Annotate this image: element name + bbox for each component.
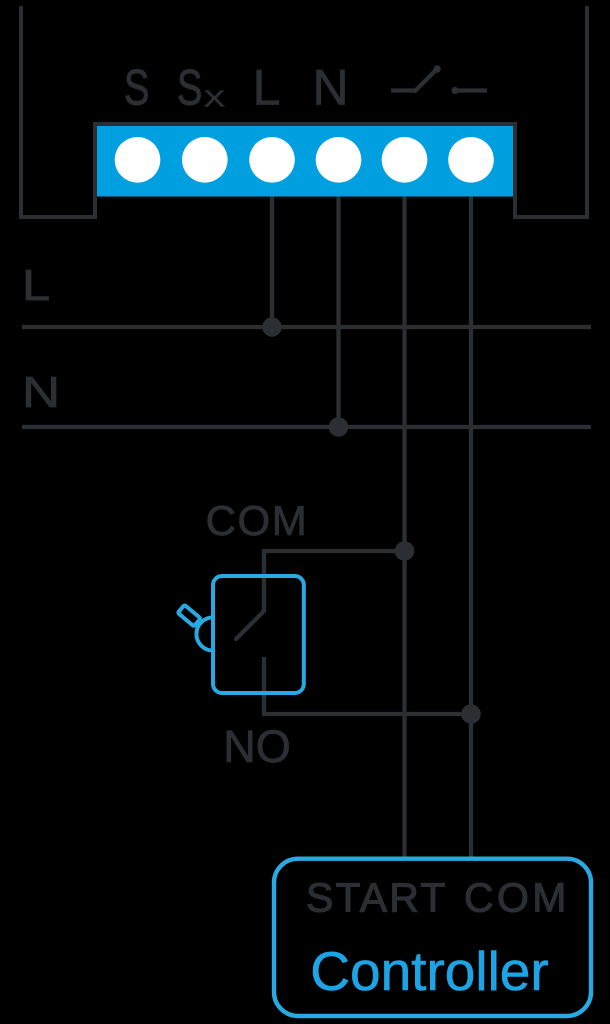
svg-text:N: N bbox=[312, 60, 348, 116]
svg-text:COM: COM bbox=[464, 875, 570, 921]
svg-text:START: START bbox=[306, 875, 448, 921]
svg-text:X: X bbox=[204, 86, 226, 111]
svg-text:Controller: Controller bbox=[310, 940, 548, 1002]
svg-text:L: L bbox=[253, 60, 281, 116]
svg-text:S: S bbox=[177, 61, 202, 116]
svg-text:COM: COM bbox=[206, 497, 309, 544]
svg-text:N: N bbox=[22, 368, 60, 417]
svg-text:L: L bbox=[22, 261, 50, 310]
svg-text:NO: NO bbox=[223, 721, 291, 772]
svg-text:S: S bbox=[124, 61, 149, 116]
